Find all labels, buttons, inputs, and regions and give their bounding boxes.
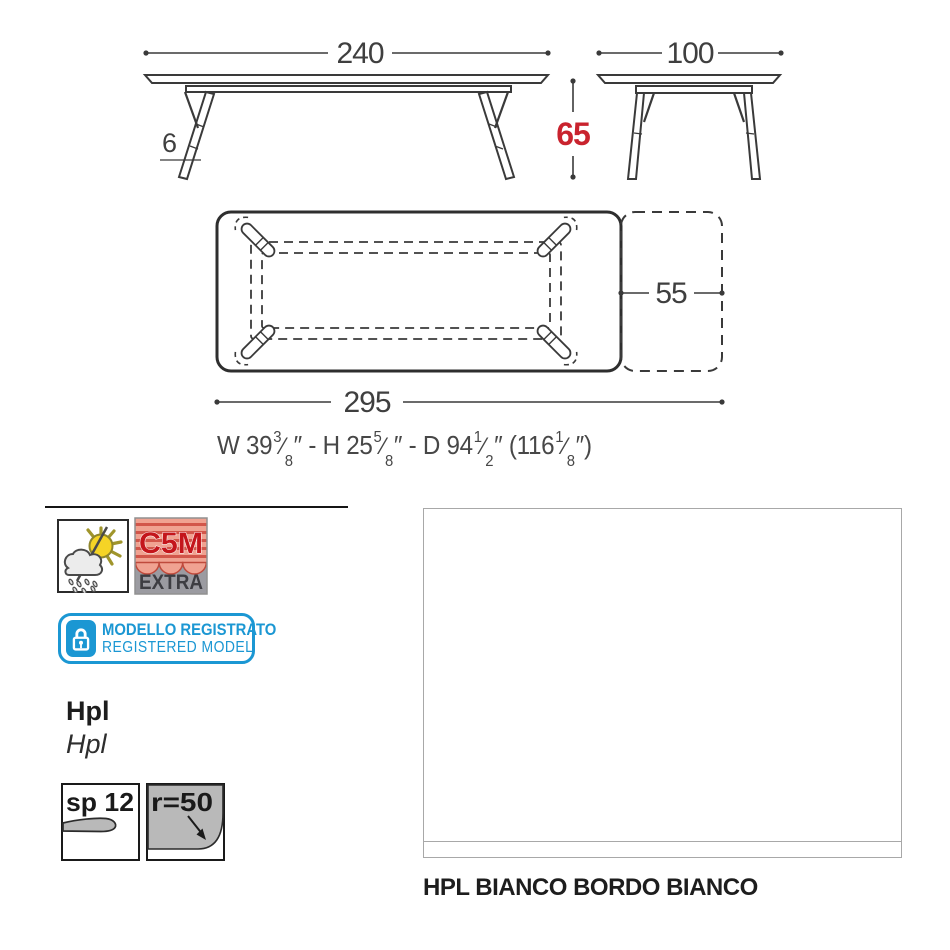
side-right-leg <box>744 93 760 179</box>
padlock-icon <box>71 625 91 653</box>
plan-leg-top-right <box>533 213 581 261</box>
side-left-brace <box>644 93 654 122</box>
swatch-edge-line <box>424 841 901 842</box>
imperial-ext: ″ (116 <box>494 430 554 460</box>
sun-cloud-rain-icon <box>57 519 129 593</box>
side-right-brace <box>734 93 744 122</box>
lock-block <box>66 620 96 657</box>
finish-swatch <box>423 508 902 858</box>
dim-65-label: 65 <box>556 116 590 152</box>
plan-view: 55 295 <box>214 212 724 419</box>
apron-front <box>186 86 511 92</box>
imperial-h: ″ - H 25 <box>294 430 373 460</box>
dim-295-label: 295 <box>343 386 390 419</box>
material-name-primary: Hpl <box>66 696 110 727</box>
dim-240-label: 240 <box>336 37 383 70</box>
finish-caption: HPL BIANCO BORDO BIANCO <box>423 874 758 902</box>
material-name-secondary: Hpl <box>66 729 107 760</box>
dimension-55: 55 <box>618 277 724 310</box>
side-left-leg <box>628 93 644 179</box>
sp12-label: sp 12 <box>66 787 134 817</box>
thickness-sp12-icon: sp 12 <box>61 783 140 861</box>
c5m-extra-badge: C5M EXTRA <box>134 517 208 595</box>
imperial-d: ″ - D 94 <box>394 430 473 460</box>
dimension-240: 240 <box>143 37 550 70</box>
separator-line <box>45 506 348 508</box>
imperial-dimensions: W 393⁄8″ - H 255⁄8″ - D 941⁄2″ (1161⁄8″) <box>217 430 592 461</box>
technical-drawing: 240 6 65 <box>0 0 950 480</box>
tabletop-side <box>598 75 780 83</box>
r50-label: r=50 <box>151 787 213 817</box>
dimension-295: 295 <box>214 386 724 419</box>
dimension-100: 100 <box>596 37 783 70</box>
front-right-brace <box>495 92 508 128</box>
side-elevation-view: 100 <box>596 37 783 179</box>
imperial-w: W 39 <box>217 430 272 460</box>
plan-frame-inner <box>262 253 550 328</box>
apron-side <box>636 86 752 93</box>
plan-leg-bottom-right <box>533 321 581 369</box>
dim-55-label: 55 <box>655 277 687 310</box>
plan-frame-outer <box>251 242 561 339</box>
spec-sheet-page: 240 6 65 <box>0 0 950 950</box>
dim-100-label: 100 <box>666 37 713 70</box>
front-right-leg <box>479 92 514 179</box>
registered-model-label: REGISTERED MODEL <box>102 639 276 656</box>
plan-leg-bottom-left <box>231 321 279 369</box>
front-left-brace <box>185 92 198 128</box>
dim-6-label: 6 <box>162 128 176 158</box>
dimension-65: 65 <box>556 78 590 179</box>
extra-label: EXTRA <box>139 571 203 594</box>
corner-radius-r50-icon: r=50 <box>146 783 225 861</box>
front-elevation-view: 240 6 <box>143 37 550 179</box>
tabletop-front <box>145 75 548 83</box>
plan-leg-top-left <box>231 213 279 261</box>
modello-registrato-label: MODELLO REGISTRATO <box>102 621 276 639</box>
front-left-leg <box>179 92 214 179</box>
c5m-label: C5M <box>139 527 203 560</box>
registered-model-badge: MODELLO REGISTRATO REGISTERED MODEL <box>58 613 255 664</box>
